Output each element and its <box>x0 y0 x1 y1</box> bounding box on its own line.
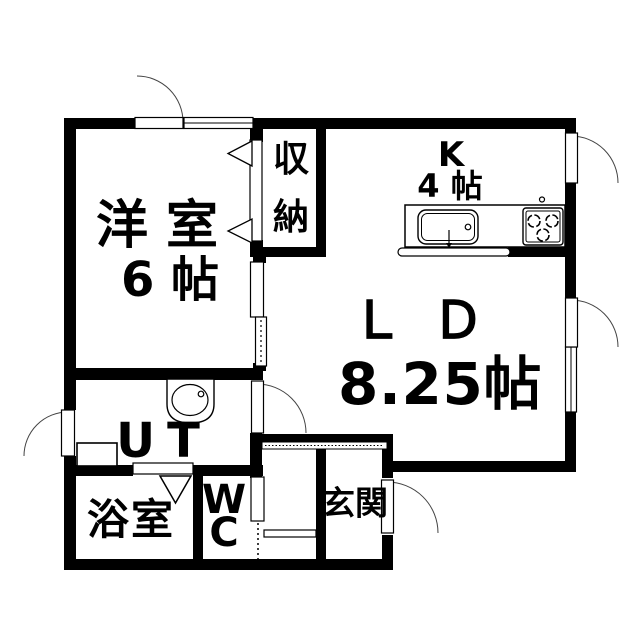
closet-label-bottom: 納 <box>273 200 309 236</box>
hall-partition-strip <box>262 442 387 449</box>
wall <box>64 368 263 380</box>
utility-label: UT <box>116 417 212 465</box>
floor-plan: 洋 室 6 帖 収 納 K 4 帖 ＬＤ 8.25帖 UT 浴室 W C 玄関 <box>0 0 640 640</box>
entrance-label: 玄関 <box>322 487 388 520</box>
kitchen-sink-icon <box>418 210 478 248</box>
sliding-door-icon <box>251 262 267 366</box>
utility-back-swing-door-icon <box>24 410 75 456</box>
gas-stove-icon <box>523 197 563 245</box>
open-counter-icon <box>398 248 510 256</box>
balcony-swing-door-icon <box>135 76 183 129</box>
kitchen-back-swing-door-icon <box>566 133 619 183</box>
utility-ld-swing-door-icon <box>252 381 307 433</box>
wall <box>382 461 576 472</box>
front-swing-door-icon <box>382 480 439 533</box>
floor-plan-drawing <box>0 0 640 640</box>
ld-side-swing-door-icon <box>566 298 619 347</box>
wall <box>253 118 576 129</box>
bathroom-label: 浴室 <box>87 499 175 541</box>
right-wall-window-icon <box>566 347 577 412</box>
wall <box>565 118 576 133</box>
top-wall-window-icon <box>184 118 253 129</box>
wall <box>64 118 76 410</box>
wall <box>382 535 393 570</box>
kitchen-size: 4 帖 <box>417 170 482 202</box>
closet-label-top: 収 <box>273 142 309 178</box>
wall <box>64 559 392 570</box>
wall <box>565 183 576 298</box>
western-room-label: 洋 室 <box>96 200 218 252</box>
living-dining-label: ＬＤ <box>351 295 512 347</box>
living-dining-size: 8.25帖 <box>338 355 542 413</box>
entrance-step-icon <box>264 530 316 537</box>
wall <box>316 129 326 257</box>
wall <box>250 434 387 442</box>
western-room-size: 6 帖 <box>121 256 219 304</box>
washing-machine-pan-icon <box>77 443 117 466</box>
wc-door-icon <box>251 477 264 560</box>
faucet-icon <box>465 224 471 230</box>
toilet-label-bottom: C <box>209 513 238 553</box>
closet-bifold-door-icon <box>228 140 262 243</box>
